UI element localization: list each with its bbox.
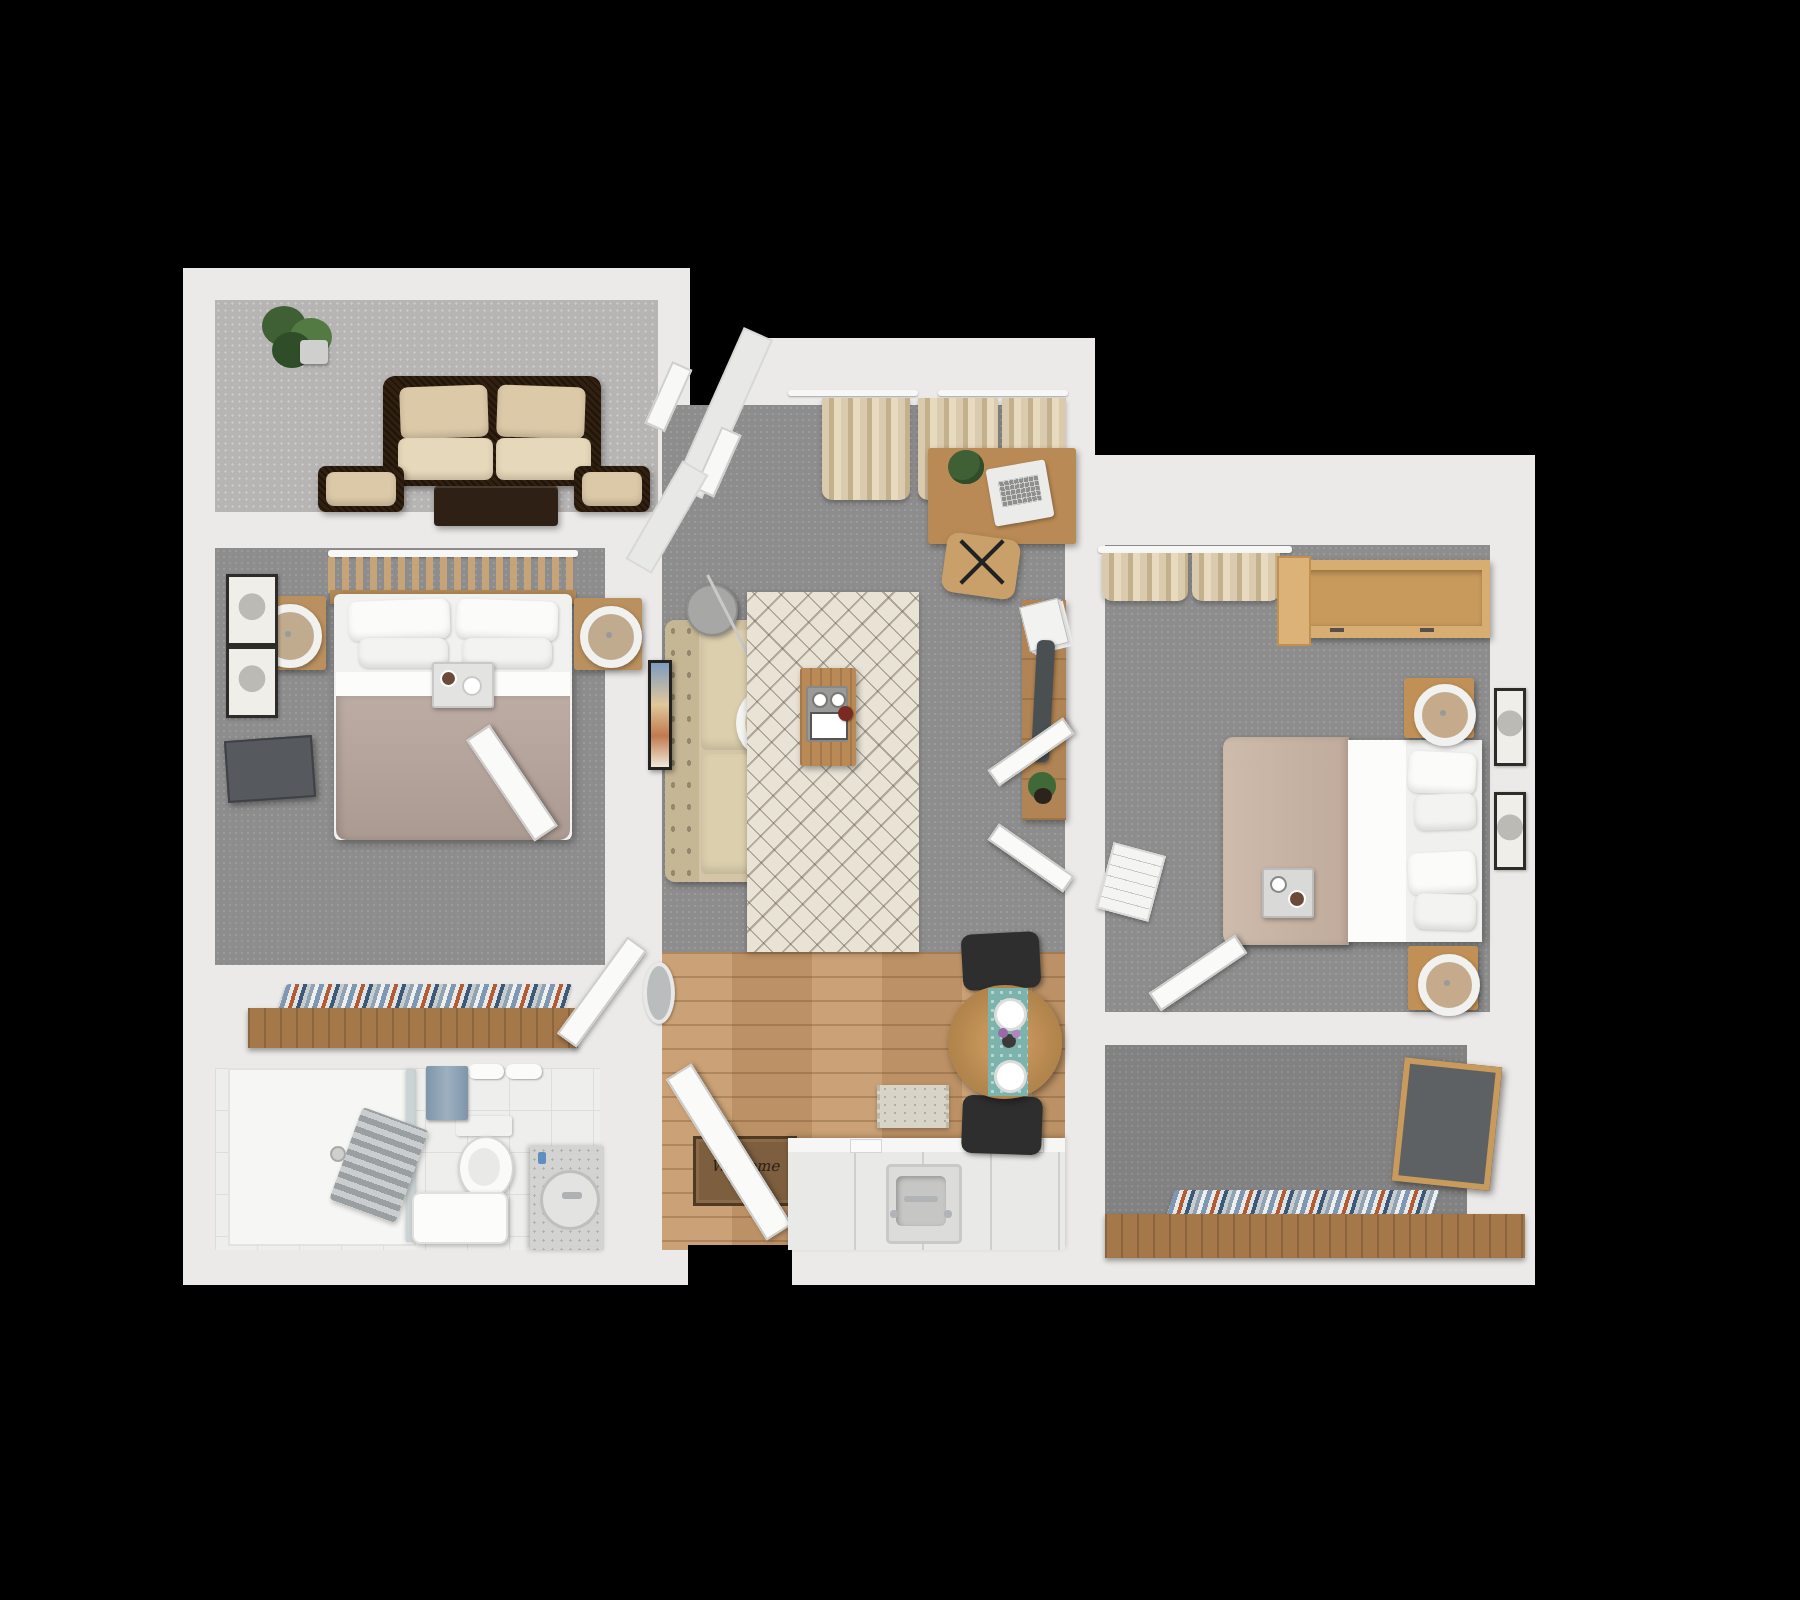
round-sink <box>540 1170 600 1230</box>
office-chair-seat <box>940 531 1022 601</box>
slat-canopy <box>328 557 578 593</box>
ring-table-lamp <box>580 606 642 668</box>
toiletry-bottle <box>538 1152 546 1164</box>
bed-pillow <box>1407 850 1477 896</box>
curtains <box>1192 553 1280 601</box>
flowers <box>998 1028 1008 1038</box>
closet-unit <box>1105 1214 1525 1258</box>
oval-wall-mirror <box>643 962 675 1024</box>
bed-sheet-fold <box>1348 740 1406 942</box>
loveseat-seat-cushion <box>398 438 493 480</box>
shower-valve <box>330 1146 346 1162</box>
kitchen-faucet <box>904 1196 938 1202</box>
wall-art <box>1494 688 1526 766</box>
breakfast-tray <box>1262 868 1314 918</box>
sunroom-coffee-table <box>434 486 558 526</box>
rolled-towel <box>506 1064 542 1079</box>
tray-cup <box>440 670 457 687</box>
toilet-seat <box>468 1148 500 1186</box>
rolled-towel <box>468 1064 504 1079</box>
bed-pillow <box>347 598 450 642</box>
wardrobe-handle <box>1420 628 1434 632</box>
closet-unit <box>248 1008 578 1048</box>
wardrobe-interior <box>1297 570 1482 626</box>
plant-pot <box>300 340 328 364</box>
flowers <box>1012 1030 1020 1038</box>
curtains <box>1102 553 1188 601</box>
curtain-rail <box>1098 546 1292 553</box>
bed-pillow-front <box>1413 893 1476 931</box>
wall-art <box>226 646 278 718</box>
red-coaster <box>838 706 853 721</box>
shelf-plant-pot <box>1034 788 1052 804</box>
curtain-rail <box>788 390 918 396</box>
bed-pillow <box>1407 750 1477 796</box>
hand-towel-blue <box>426 1066 468 1120</box>
loveseat-back-pillow <box>399 384 489 439</box>
desk-plant-foliage-icon <box>948 450 984 484</box>
wall-art <box>1494 792 1526 870</box>
dining-chair-top <box>961 931 1042 991</box>
tray-cup <box>812 692 828 708</box>
ring-table-lamp <box>1414 684 1476 746</box>
arc-lamp-base <box>686 584 738 636</box>
wardrobe-end-panel <box>1277 556 1311 646</box>
leaning-mirror <box>1392 1057 1502 1191</box>
tray-cup <box>1270 876 1287 893</box>
sink-faucet <box>562 1192 582 1199</box>
dining-chair-bottom <box>961 1095 1043 1156</box>
faucet-handle <box>944 1210 952 1218</box>
area-rug <box>747 592 919 952</box>
canopy-rail <box>328 550 578 557</box>
bed-pillow-front <box>1413 793 1476 831</box>
loveseat-back-pillow <box>496 384 586 439</box>
wardrobe-handle <box>1330 628 1344 632</box>
curtains <box>822 398 910 500</box>
entry-opening <box>688 1245 792 1285</box>
faucet-handle <box>890 1210 898 1218</box>
accent-chair-cushion <box>582 472 642 506</box>
tray-bowl <box>1288 890 1306 908</box>
wall-art <box>226 574 278 646</box>
floor-plan-scene: Welcome HOME <box>0 0 1800 1600</box>
sofa-wall-art <box>648 660 672 770</box>
cutting-board <box>850 1139 882 1153</box>
wall-tv <box>224 735 316 803</box>
tray-bowl <box>462 676 482 696</box>
dinner-plate <box>994 998 1027 1031</box>
accent-chair-cushion <box>326 472 396 506</box>
ring-table-lamp <box>1418 954 1480 1016</box>
bed-pillow <box>455 598 558 642</box>
dinner-plate <box>994 1060 1027 1093</box>
shower-bench <box>412 1192 508 1244</box>
runner-rug <box>877 1085 949 1128</box>
curtain-rail <box>938 390 1068 396</box>
